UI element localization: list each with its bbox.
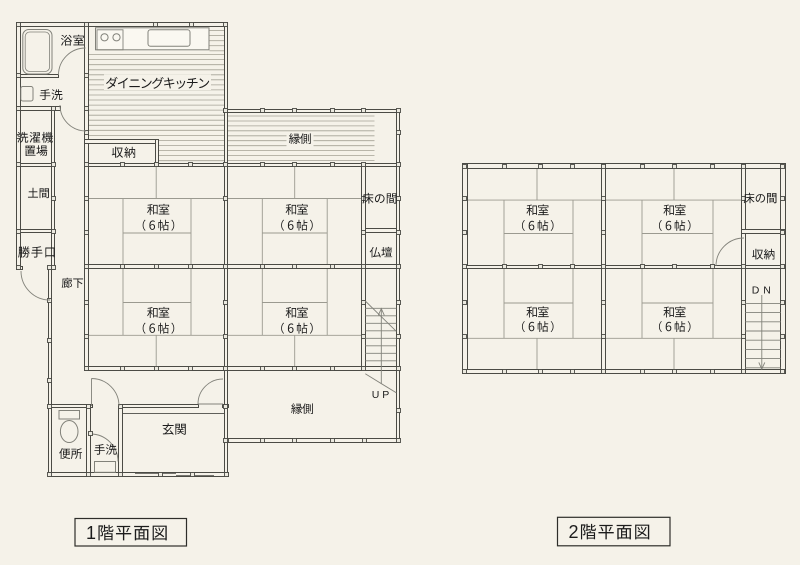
svg-text:1: 1 <box>86 523 96 543</box>
svg-text:DN: DN <box>752 285 775 297</box>
svg-text:2: 2 <box>568 522 578 542</box>
svg-text:UP: UP <box>372 389 393 401</box>
